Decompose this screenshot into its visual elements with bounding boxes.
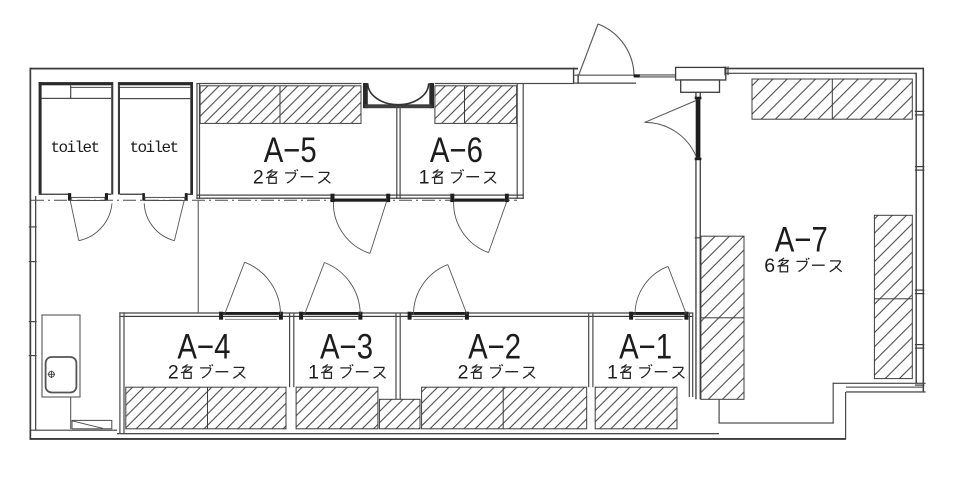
svg-text:2: 2	[253, 166, 264, 188]
svg-text:A−1: A−1	[619, 328, 672, 367]
svg-text:2: 2	[168, 361, 179, 383]
svg-text:A−4: A−4	[177, 328, 230, 367]
svg-text:6: 6	[764, 255, 775, 277]
svg-text:toilet: toilet	[129, 139, 177, 157]
svg-text:A−5: A−5	[264, 131, 317, 170]
svg-text:A−7: A−7	[775, 221, 828, 260]
svg-text:toilet: toilet	[50, 139, 98, 157]
svg-text:1: 1	[419, 166, 430, 188]
svg-text:1: 1	[607, 361, 618, 383]
svg-text:2: 2	[458, 361, 469, 383]
svg-text:A−2: A−2	[468, 328, 521, 367]
svg-text:A−3: A−3	[320, 328, 373, 367]
svg-text:A−6: A−6	[430, 131, 483, 170]
svg-text:1: 1	[308, 361, 319, 383]
